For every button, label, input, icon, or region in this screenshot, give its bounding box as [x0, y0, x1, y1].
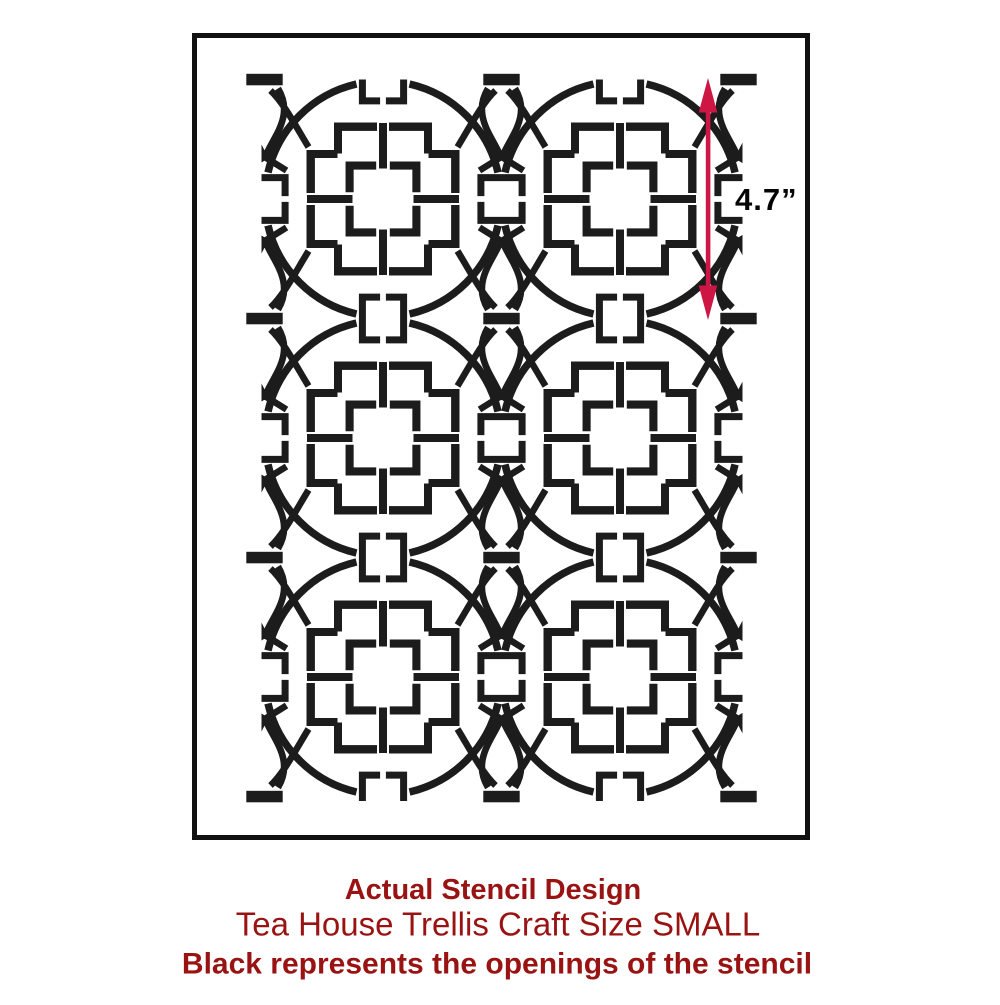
- svg-text:Tea House Trellis Craft Size S: Tea House Trellis Craft Size SMALL: [236, 906, 761, 943]
- svg-text:4.7”: 4.7”: [735, 182, 798, 217]
- svg-text:Black represents the openings: Black represents the openings of the ste…: [182, 948, 812, 981]
- svg-text:Actual Stencil Design: Actual Stencil Design: [345, 874, 642, 906]
